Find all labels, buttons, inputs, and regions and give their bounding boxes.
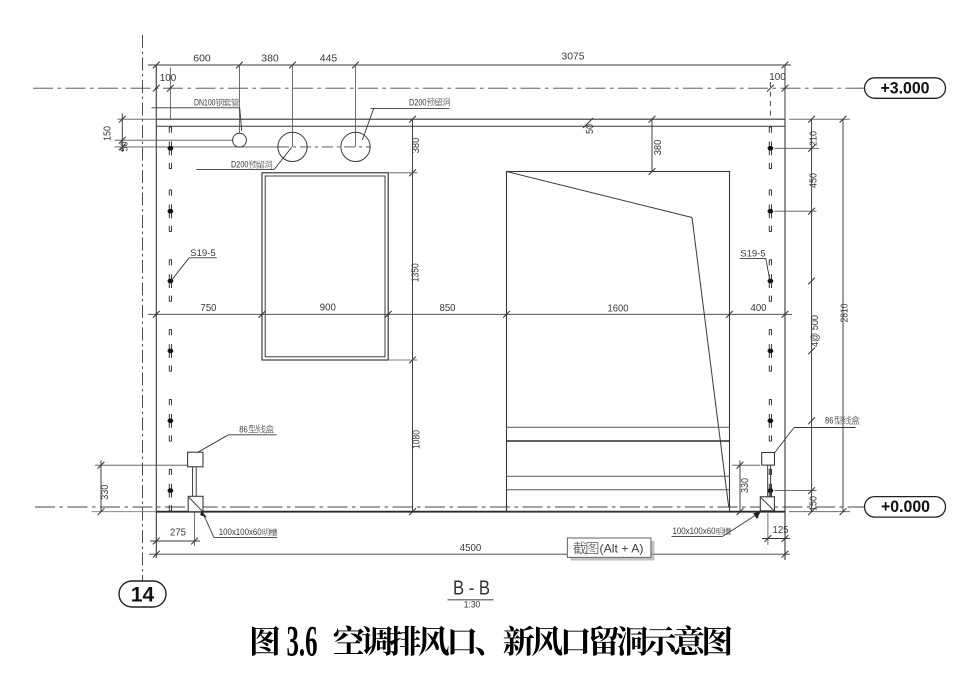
svg-text:(Alt + A): (Alt + A) [600,542,644,556]
svg-text:450: 450 [809,173,820,188]
svg-text:600: 600 [193,53,211,65]
svg-text:380: 380 [411,137,422,153]
svg-text:B - B: B - B [453,577,490,599]
svg-text:+0.000: +0.000 [881,497,930,516]
svg-text:150: 150 [103,126,114,141]
svg-text:400: 400 [751,302,767,314]
svg-text:50: 50 [585,124,596,134]
svg-text:D200: D200 [409,97,427,108]
svg-text:100x100x60: 100x100x60 [673,526,716,537]
svg-text:3.6: 3.6 [287,617,318,665]
svg-text:210: 210 [808,131,819,146]
svg-text:100x100x60: 100x100x60 [219,527,262,538]
svg-text:50: 50 [120,141,131,151]
svg-text:330: 330 [100,484,111,499]
svg-text:850: 850 [440,302,456,314]
svg-text:275: 275 [170,527,186,539]
svg-text:750: 750 [201,302,217,314]
svg-text:445: 445 [320,53,338,65]
svg-text:330: 330 [740,478,751,493]
svg-text:4500: 4500 [460,542,482,554]
svg-text:86: 86 [239,424,248,435]
svg-text:S19-5: S19-5 [190,248,216,259]
svg-text:14: 14 [131,584,155,607]
svg-text:3075: 3075 [562,51,585,63]
svg-text:S19-5: S19-5 [740,248,766,259]
svg-text:125: 125 [773,524,789,536]
svg-text:1080: 1080 [411,430,422,449]
svg-text:1350: 1350 [410,263,421,282]
svg-text:4@ 500: 4@ 500 [810,315,821,347]
svg-text:2810: 2810 [840,303,851,322]
svg-text:1:30: 1:30 [464,599,481,609]
svg-text:+3.000: +3.000 [881,78,930,97]
svg-text:380: 380 [261,53,279,65]
svg-text:380: 380 [653,139,664,155]
svg-text:1600: 1600 [608,303,629,315]
svg-text:86: 86 [825,416,834,427]
svg-text:150: 150 [809,496,820,511]
svg-text:DN100: DN100 [194,98,216,109]
svg-text:900: 900 [320,302,336,314]
svg-text:100: 100 [160,72,177,84]
svg-text:100: 100 [769,71,786,83]
